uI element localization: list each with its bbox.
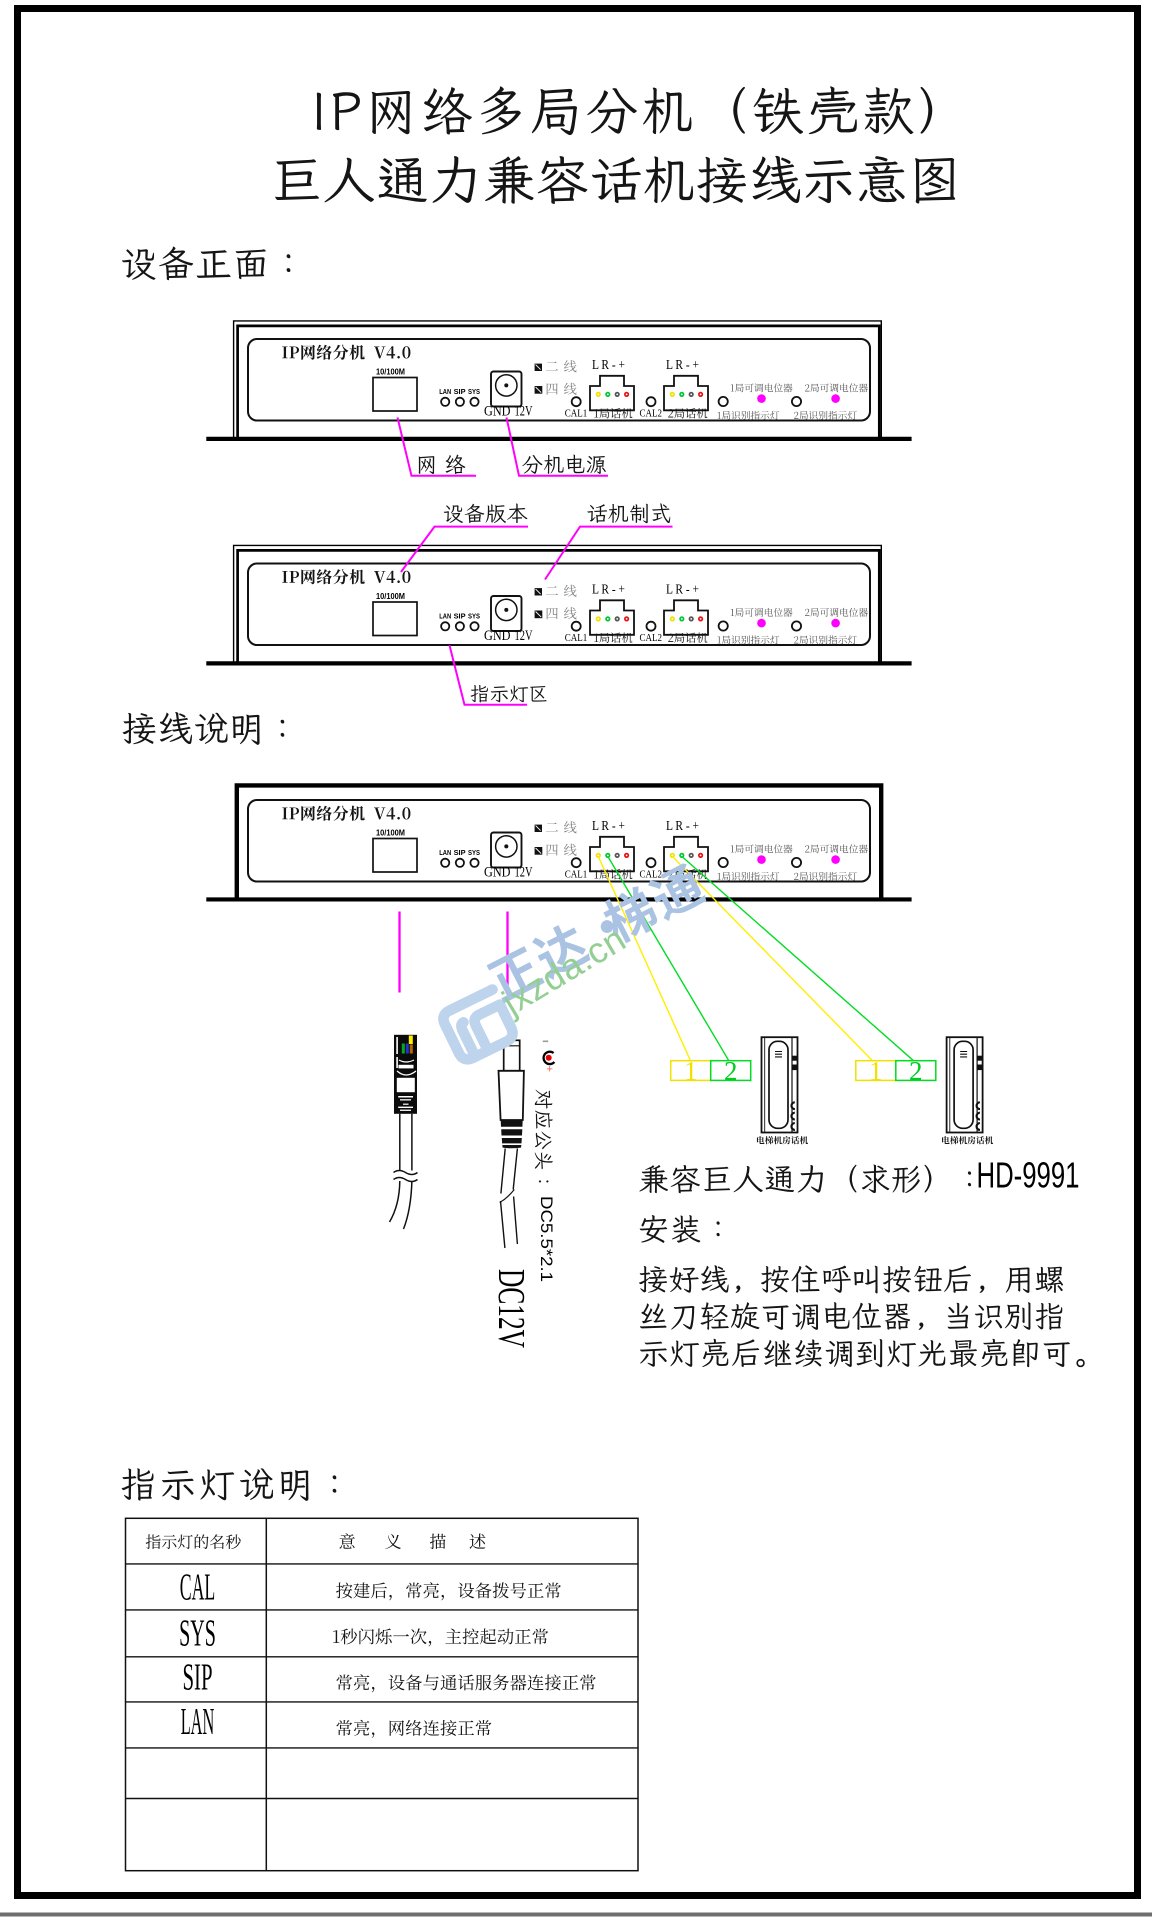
svg-text:LAN: LAN [439, 387, 451, 396]
svg-text:HD-9991: HD-9991 [977, 1155, 1080, 1196]
svg-text:L R - +: L R - + [592, 357, 625, 372]
svg-text:SYS: SYS [468, 848, 480, 857]
svg-text:SIP: SIP [454, 612, 466, 621]
svg-text:CAL1: CAL1 [565, 632, 588, 644]
svg-text:10/100M: 10/100M [376, 592, 405, 601]
svg-text:12V: 12V [515, 628, 533, 644]
svg-text:GND: GND [484, 404, 511, 420]
svg-text:L R - +: L R - + [666, 582, 699, 597]
svg-text:SIP: SIP [454, 848, 466, 857]
svg-text:L R - +: L R - + [666, 818, 699, 833]
svg-text:10/100M: 10/100M [376, 829, 405, 838]
svg-text:+: + [547, 1064, 553, 1076]
svg-text:CAL1: CAL1 [565, 408, 588, 420]
svg-text:L R - +: L R - + [592, 582, 625, 597]
svg-text:DC5.5*2.1: DC5.5*2.1 [537, 1196, 555, 1282]
svg-text:2: 2 [724, 1056, 738, 1086]
svg-text:SIP: SIP [183, 1656, 213, 1698]
svg-text:1: 1 [869, 1056, 883, 1086]
svg-text:CAL: CAL [180, 1566, 216, 1608]
svg-text:SYS: SYS [468, 387, 480, 396]
svg-text:GND: GND [484, 628, 511, 644]
svg-text:L R - +: L R - + [592, 818, 625, 833]
svg-text:LAN: LAN [181, 1701, 215, 1743]
svg-text:LAN: LAN [439, 612, 451, 621]
svg-text:CAL2: CAL2 [640, 869, 663, 881]
svg-text:CAL2: CAL2 [640, 408, 663, 420]
svg-text:10/100M: 10/100M [376, 368, 405, 377]
svg-text:CAL1: CAL1 [565, 869, 588, 881]
svg-text:12V: 12V [515, 865, 533, 881]
svg-text:CAL2: CAL2 [640, 632, 663, 644]
svg-text:LAN: LAN [439, 848, 451, 857]
svg-text:GND: GND [484, 865, 511, 881]
svg-text:L R - +: L R - + [666, 357, 699, 372]
svg-text:SYS: SYS [468, 612, 480, 621]
svg-text:2: 2 [909, 1056, 923, 1086]
svg-text:SYS: SYS [179, 1613, 216, 1655]
svg-text:DC12V: DC12V [490, 1269, 532, 1348]
svg-text:1: 1 [684, 1056, 698, 1086]
svg-text:SIP: SIP [454, 387, 466, 396]
svg-text:12V: 12V [515, 404, 533, 420]
